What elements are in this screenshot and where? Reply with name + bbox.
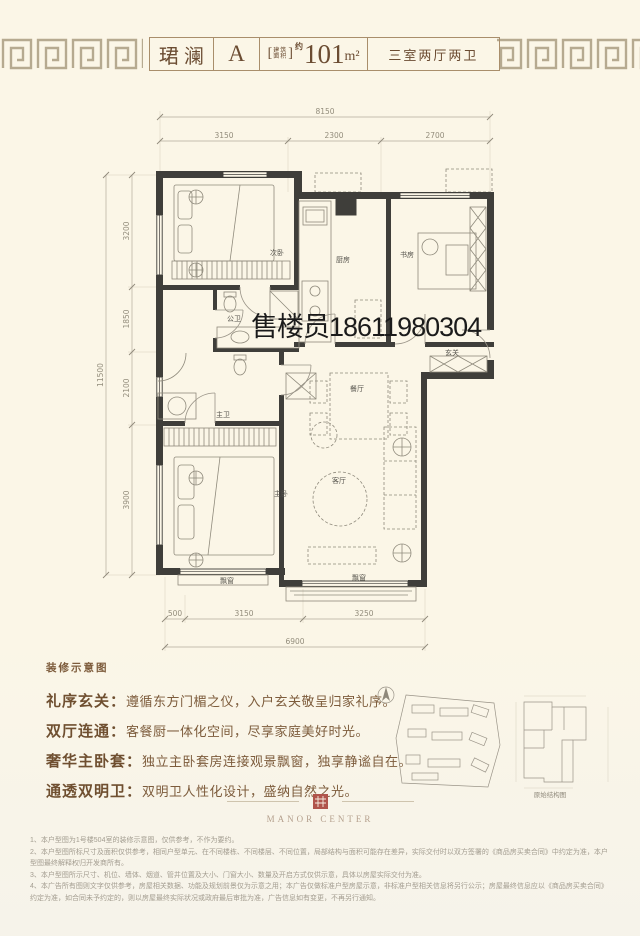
room-label-public-bath: 公卫 [227,315,241,323]
project-name: 珺澜 [150,38,214,70]
dim-top-1: 3150 [214,131,233,140]
bracket-open: [ [268,46,273,62]
feature-label: 双厅连通： [46,724,126,740]
title-row: 珺澜 A [ 建筑 面积 ] 约 101 m² 三室两厅两卫 [149,37,500,71]
approx-mark: 约 [295,41,303,52]
area-label-bottom: 面积 [273,54,287,61]
site-buildings [406,705,489,780]
compass-icon [378,687,394,703]
dimensions-bottom: 500 3150 3250 6900 [162,609,428,650]
dimensions-left: 11500 3200 1850 2100 3900 [96,172,135,578]
dim-bottom-total: 6900 [285,637,304,646]
area-cell: [ 建筑 面积 ] 约 101 m² [260,38,367,70]
structure-outline [524,702,586,782]
decor-caption: 装修示意图 [46,660,109,675]
area-number: 101 [304,41,345,68]
room-label-dining: 餐厅 [350,384,364,393]
dim-left-3: 2100 [122,378,131,397]
room-label-secondary-bedroom: 次卧 [270,248,284,257]
bracket-close: ] [288,46,293,62]
feature-text: 客餐厨一体化空间，尽享家庭美好时光。 [126,724,369,739]
feature-text: 遵循东方门楣之仪，入户玄关敬呈归家礼序。 [126,694,396,709]
structure-minimap: 原始结构图 [510,690,615,800]
greek-key-left [0,37,143,71]
dim-bottom-1: 500 [168,609,183,618]
room-label-living: 客厅 [332,476,346,485]
dim-left-4: 3900 [122,490,131,509]
logo-divider-right [342,801,414,802]
disclaimer-line: 3、本户型图所示尺寸、机位、墙体、烟道、管井位置及大小、门窗大小、数量及开启方式… [30,870,614,882]
feature-label: 礼序玄关： [46,694,126,710]
dim-top-2: 2300 [324,131,343,140]
site-plan-minimap [372,683,507,795]
manor-seal-icon [313,794,328,809]
site-boundary [396,695,500,787]
unit-letter: A [214,38,261,70]
greek-key-right [497,37,640,71]
dim-left-1: 3200 [122,221,131,240]
logo-name: MANOR CENTER [0,814,640,824]
room-label-kitchen: 厨房 [336,255,350,264]
sales-watermark: 售楼员18611980304 [251,305,481,344]
room-label-master-bedroom: 主卧 [274,489,288,498]
dim-left-2: 1850 [122,309,131,328]
disclaimer-line: 2、本户型图所标尺寸及面积仅供参考，相同户型单元、在不同楼栋、不同楼层、不同位置… [30,847,614,870]
layout-type: 三室两厅两卫 [368,38,499,70]
feature-label: 奢华主卧套： [46,754,142,770]
dimensions-top: 8150 3150 2300 2700 [157,107,493,144]
floor-plan: 8150 3150 2300 2700 11500 3200 1850 2100… [90,95,520,660]
dim-top-3: 2700 [425,131,444,140]
equipment-platforms [315,169,492,192]
disclaimer-line: 4、本广告所有图则文字仅供参考，房屋相关数据、功能及规划前景仅为示意之用；本广告… [30,881,614,904]
dim-top-total: 8150 [315,107,334,116]
dim-bottom-3: 3250 [354,609,373,618]
dim-left-total: 11500 [96,363,105,387]
bay-window-label-right: 飘窗 [352,573,366,582]
disclaimer-block: 1、本户型图为1号楼504室的装修示意图，仅供参考，不作为要约。 2、本户型图所… [30,835,614,904]
room-label-foyer: 玄关 [445,348,459,357]
logo-seal-row [0,792,640,810]
logo-divider-left [227,801,299,802]
area-unit: m² [344,49,359,65]
logo-block: MANOR CENTER [0,792,640,824]
area-label: 建筑 面积 [273,48,287,61]
room-label-study: 书房 [400,250,414,259]
bay-window-label-left: 飘窗 [220,576,234,585]
disclaimer-line: 1、本户型图为1号楼504室的装修示意图，仅供参考，不作为要约。 [30,835,614,847]
dim-bottom-2: 3150 [234,609,253,618]
room-label-master-bath: 主卫 [216,410,230,419]
